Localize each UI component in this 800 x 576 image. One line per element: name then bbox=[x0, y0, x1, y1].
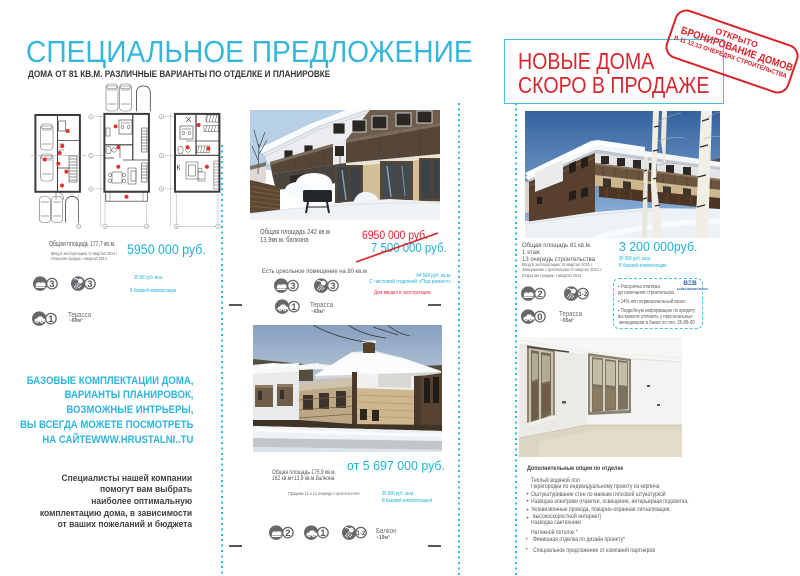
svg-text:2: 2 bbox=[285, 528, 290, 539]
svg-text:1-2: 1-2 bbox=[578, 291, 588, 298]
svg-text:3: 3 bbox=[49, 279, 54, 290]
svg-text:3: 3 bbox=[88, 279, 93, 290]
svg-text:1-2: 1-2 bbox=[356, 530, 366, 537]
svg-text:1: 1 bbox=[320, 528, 326, 539]
svg-text:2: 2 bbox=[537, 289, 542, 300]
svg-text:1: 1 bbox=[291, 302, 297, 313]
svg-text:1: 1 bbox=[48, 314, 54, 325]
svg-text:б: б bbox=[78, 225, 80, 229]
svg-text:б: б bbox=[217, 225, 219, 229]
svg-text:0: 0 bbox=[537, 312, 542, 323]
svg-text:б: б bbox=[146, 225, 148, 229]
svg-text:3: 3 bbox=[290, 281, 295, 292]
svg-text:3: 3 bbox=[330, 281, 335, 292]
